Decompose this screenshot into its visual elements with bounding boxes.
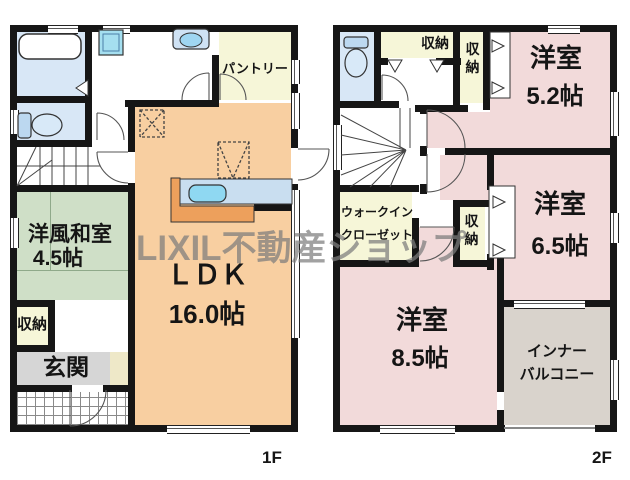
wall bbox=[103, 385, 135, 392]
wall bbox=[10, 185, 135, 192]
room-bathroom bbox=[17, 32, 85, 96]
label-washitsu-size: 4.5帖 bbox=[12, 247, 104, 270]
porch bbox=[17, 392, 128, 425]
wall bbox=[585, 300, 610, 307]
label-storage-52: 収納 bbox=[464, 40, 481, 76]
wall bbox=[10, 345, 55, 352]
window bbox=[291, 93, 300, 129]
genkan-step bbox=[110, 352, 128, 385]
label-bedroom-85-name: 洋室 bbox=[376, 306, 468, 335]
label-balcony-line2: バルコニー bbox=[504, 367, 610, 384]
window bbox=[514, 300, 585, 309]
door-opening bbox=[497, 392, 504, 410]
room-toilet-2f bbox=[340, 32, 374, 103]
stairs-1f bbox=[17, 147, 100, 186]
room-toilet-1f bbox=[17, 103, 85, 140]
label-floor-2f: 2F bbox=[592, 449, 612, 468]
window bbox=[380, 425, 455, 434]
wall bbox=[420, 105, 427, 114]
room-bedroom-65-alcove bbox=[440, 155, 494, 200]
wall bbox=[497, 410, 504, 432]
label-balcony-line1: インナー bbox=[506, 344, 608, 361]
label-storage-hall: 収納 bbox=[413, 36, 457, 51]
label-genkan: 玄関 bbox=[36, 355, 96, 380]
tatami-line bbox=[17, 270, 128, 271]
room-bedroom-65 bbox=[494, 155, 610, 300]
window bbox=[610, 92, 619, 136]
label-pantry: パントリー bbox=[217, 62, 293, 76]
room-bedroom-52-alcove bbox=[427, 112, 497, 148]
label-bedroom-52-name: 洋室 bbox=[508, 44, 604, 73]
wall bbox=[497, 255, 504, 392]
balcony-edge bbox=[504, 427, 595, 429]
window bbox=[48, 25, 78, 34]
wall bbox=[420, 184, 427, 194]
wall bbox=[374, 32, 381, 107]
label-wic-line1: ウォークイン bbox=[338, 206, 416, 219]
wall bbox=[420, 146, 427, 156]
stairs-2f bbox=[341, 108, 410, 187]
wall bbox=[333, 101, 399, 108]
label-bedroom-52-size: 5.2帖 bbox=[504, 84, 606, 110]
floor-plan: パントリー 洋風和室 4.5帖 ＬＤＫ 16.0帖 収納 玄関 1F 収納 収納… bbox=[0, 0, 630, 480]
label-storage-1f: 収納 bbox=[10, 317, 54, 334]
wall bbox=[128, 300, 135, 432]
wall bbox=[17, 96, 85, 103]
door-opening bbox=[388, 58, 436, 65]
sliding-window bbox=[167, 425, 250, 434]
wall bbox=[487, 148, 494, 190]
window bbox=[548, 25, 580, 34]
label-bedroom-85-size: 8.5帖 bbox=[370, 346, 470, 372]
door-opening bbox=[291, 148, 298, 184]
wall bbox=[10, 425, 298, 432]
label-ldk-size: 16.0帖 bbox=[143, 300, 271, 329]
wall bbox=[10, 140, 92, 147]
wall bbox=[128, 185, 135, 307]
wall bbox=[10, 385, 72, 392]
wall bbox=[128, 100, 135, 152]
label-floor-1f: 1F bbox=[262, 449, 282, 468]
window bbox=[610, 213, 619, 243]
wall bbox=[85, 32, 92, 144]
label-washitsu-name: 洋風和室 bbox=[12, 223, 128, 246]
window bbox=[103, 25, 130, 34]
label-bedroom-65-name: 洋室 bbox=[514, 190, 606, 219]
wall bbox=[125, 100, 219, 107]
wall bbox=[333, 185, 419, 192]
watermark: LIXIL不動産ショップ bbox=[136, 220, 467, 271]
window bbox=[333, 125, 342, 170]
washbasin-icon bbox=[173, 29, 209, 49]
label-bedroom-65-size: 6.5帖 bbox=[512, 234, 608, 260]
window bbox=[610, 360, 619, 400]
window bbox=[10, 110, 19, 134]
wall bbox=[483, 25, 490, 110]
wall bbox=[445, 148, 610, 155]
